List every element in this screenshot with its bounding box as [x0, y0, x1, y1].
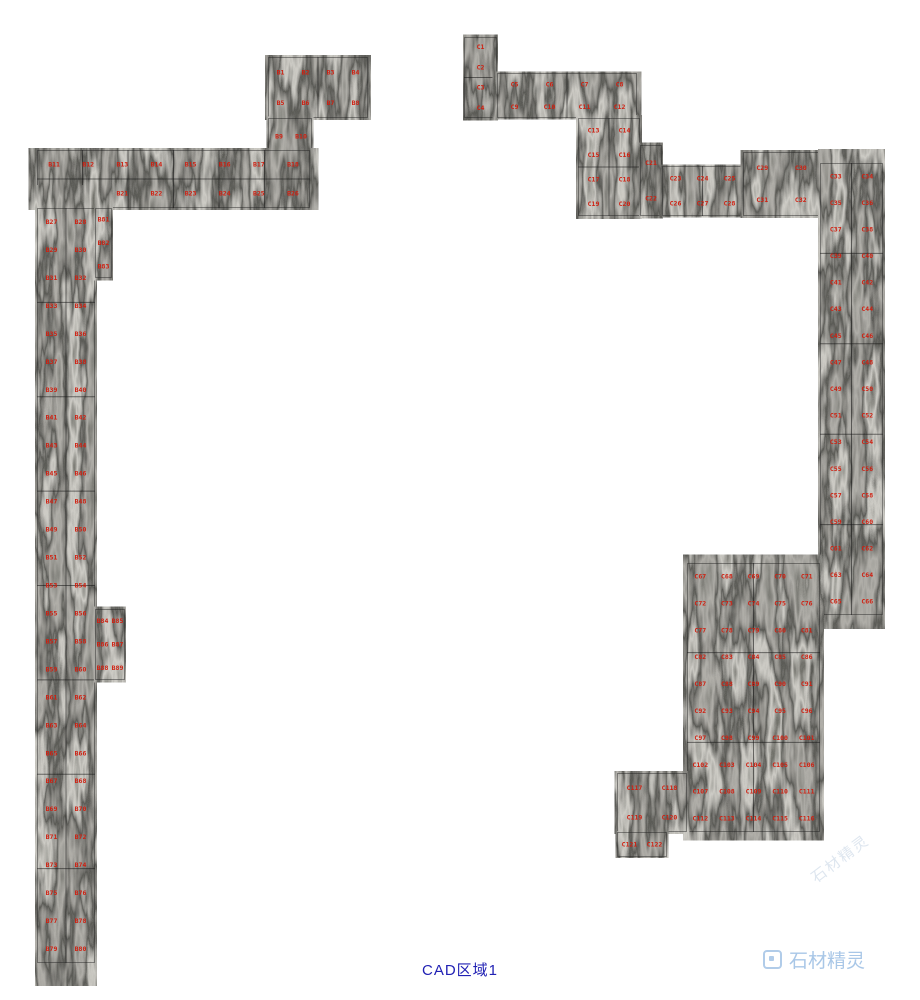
tile-region-left-band: B11B12B13B14B15B16B17B18B19B20B21B22B23B…: [37, 150, 310, 208]
tile-label: B44: [75, 442, 87, 450]
tile-label: B12: [82, 161, 94, 169]
tile-label: C77: [694, 626, 706, 634]
tile-label: B10: [295, 133, 307, 141]
tile-label: B84: [97, 617, 109, 625]
tile-label: B26: [287, 190, 299, 198]
tile-label: C112: [692, 815, 708, 823]
tile-label: B52: [75, 554, 87, 562]
tile-label: C69: [748, 572, 760, 580]
tile-label: C83: [721, 653, 733, 661]
tile-label: B14: [151, 161, 163, 169]
tile-label: C95: [774, 707, 786, 715]
tile-label: C107: [692, 788, 708, 796]
tile-label: C64: [861, 571, 873, 579]
watermark-logo-icon: [763, 950, 782, 969]
tile-label: B37: [46, 358, 58, 366]
tile-label: B80: [75, 945, 87, 953]
tile-label: B67: [46, 777, 58, 785]
tile-label: C42: [861, 279, 873, 287]
tile-label: C67: [694, 572, 706, 580]
tile-label: C66: [861, 598, 873, 606]
tile-label: B56: [75, 609, 87, 617]
tile-label: C120: [662, 813, 678, 821]
tile-label: C39: [830, 252, 842, 260]
tile-label: C119: [627, 813, 643, 821]
tile-label: C50: [861, 385, 873, 393]
tile-label: C94: [748, 707, 760, 715]
tile-label: C68: [721, 572, 733, 580]
tile-label: B62: [75, 693, 87, 701]
tile-label: B87: [112, 641, 124, 649]
tile-label: C1: [477, 43, 485, 51]
tile-label: B68: [75, 777, 87, 785]
tile-label: B69: [46, 805, 58, 813]
tile-label: C9: [511, 103, 519, 111]
tile-label: B17: [253, 161, 265, 169]
tile-label: B74: [75, 861, 87, 869]
tile-label: B54: [75, 582, 87, 590]
tile-label: C115: [772, 815, 788, 823]
tile-label: B82: [98, 239, 110, 247]
tile-label: B73: [46, 861, 58, 869]
tile-label: C41: [830, 279, 842, 287]
tile-region-right-band-mid: C23C24C25C26C27C28: [662, 166, 743, 216]
tile-label: B33: [46, 302, 58, 310]
tile-region-right-top-row: C5C6C7C8C9C10C11C12: [497, 73, 637, 118]
tile-label: C81: [801, 626, 813, 634]
tile-label: C88: [721, 680, 733, 688]
tile-label: B60: [75, 665, 87, 673]
tile-label: B51: [46, 554, 58, 562]
tile-label: B3: [327, 68, 335, 76]
tile-label: B31: [46, 274, 58, 282]
tile-label: C122: [647, 841, 663, 849]
stone-tiles-right-step[interactable]: [640, 145, 662, 216]
tile-label: B76: [75, 889, 87, 897]
tile-label: C70: [774, 572, 786, 580]
tile-label: B49: [46, 526, 58, 534]
tile-label: B20: [82, 190, 94, 198]
tile-label: B55: [46, 609, 58, 617]
tile-label: C44: [861, 305, 873, 313]
tile-label: C76: [801, 599, 813, 607]
tile-label: C14: [619, 126, 631, 134]
tile-label: B25: [253, 190, 265, 198]
tile-label: C84: [748, 653, 760, 661]
tile-label: C65: [830, 598, 842, 606]
tile-label: B6: [302, 99, 310, 107]
tile-label: B29: [46, 246, 58, 254]
tile-label: C92: [694, 707, 706, 715]
tile-label: C22: [645, 194, 657, 202]
tile-label: C91: [801, 680, 813, 688]
tile-label: B41: [46, 414, 58, 422]
tile-label: B4: [352, 68, 360, 76]
tile-label: B78: [75, 917, 87, 925]
tile-label: C118: [662, 784, 678, 792]
tile-region-left-stub: B81B82B83: [95, 208, 112, 278]
tile-region-top-left-block: B1B2B3B4B5B6B7B8: [268, 57, 368, 118]
tile-label: C87: [694, 680, 706, 688]
tile-label: C26: [670, 200, 682, 208]
tile-label: B34: [75, 302, 87, 310]
tile-label: B40: [75, 386, 87, 394]
tile-label: C25: [724, 175, 736, 183]
tile-label: B86: [97, 641, 109, 649]
tile-regions-root: B1B2B3B4B5B6B7B8B9B10B11B12B13B14B15B16B…: [37, 37, 883, 963]
tile-label: C116: [799, 815, 815, 823]
tile-label: B2: [302, 68, 310, 76]
tile-label: B19: [48, 190, 60, 198]
tile-label: C40: [861, 252, 873, 260]
tile-label: C71: [801, 572, 813, 580]
tile-label: C7: [581, 80, 589, 88]
tile-label: B72: [75, 833, 87, 841]
tile-label: C18: [619, 175, 631, 183]
tile-label: C60: [861, 518, 873, 526]
tile-label: C117: [627, 784, 643, 792]
tile-label: C10: [544, 103, 556, 111]
tile-label: C45: [830, 332, 842, 340]
tile-label: C72: [694, 599, 706, 607]
tile-label: C103: [719, 761, 735, 769]
tile-label: B38: [75, 358, 87, 366]
watermark-text: 石材精灵: [789, 946, 865, 973]
cad-canvas[interactable]: B1B2B3B4B5B6B7B8B9B10B11B12B13B14B15B16B…: [0, 0, 920, 1000]
tile-label: B46: [75, 470, 87, 478]
tile-label: C16: [619, 151, 631, 159]
tile-label: C13: [588, 126, 600, 134]
tile-label: B45: [46, 470, 58, 478]
tile-label: C51: [830, 412, 842, 420]
tile-label: B58: [75, 637, 87, 645]
watermark: 石材精灵: [763, 946, 865, 973]
tile-label: C27: [697, 200, 709, 208]
tile-label: B47: [46, 498, 58, 506]
tile-label: B75: [46, 889, 58, 897]
tile-label: C33: [830, 172, 842, 180]
tile-label: C78: [721, 626, 733, 634]
tile-label: B50: [75, 526, 87, 534]
tile-label: C102: [692, 761, 708, 769]
tile-label: B53: [46, 582, 58, 590]
tile-label: C34: [861, 172, 873, 180]
stone-layout: B1B2B3B4B5B6B7B8B9B10B11B12B13B14B15B16B…: [0, 0, 920, 1000]
tile-label: C35: [830, 199, 842, 207]
tile-label: C74: [748, 599, 760, 607]
tile-region-left-bump: B84B85B86B87B88B89: [95, 609, 125, 680]
tile-label: C63: [830, 571, 842, 579]
tile-region-bottom-right-stub: C121C122: [617, 832, 667, 857]
tile-label: C12: [614, 103, 626, 111]
tile-label: C75: [774, 599, 786, 607]
tile-label: B15: [185, 161, 197, 169]
tile-label: C20: [619, 200, 631, 208]
tile-label: C110: [772, 788, 788, 796]
tile-label: B16: [219, 161, 231, 169]
tile-label: B7: [327, 99, 335, 107]
tile-label: C46: [861, 332, 873, 340]
tile-label: C113: [719, 815, 735, 823]
tile-label: B63: [46, 721, 58, 729]
tile-label: C54: [861, 438, 873, 446]
tile-label: B42: [75, 414, 87, 422]
tile-label: C96: [801, 707, 813, 715]
tile-label: B81: [98, 216, 110, 224]
tile-label: B22: [151, 190, 163, 198]
tile-label: B23: [185, 190, 197, 198]
tile-label: B66: [75, 749, 87, 757]
tile-label: C36: [861, 199, 873, 207]
tile-label: C15: [588, 151, 600, 159]
tile-label: B9: [275, 133, 283, 141]
tile-label: B85: [112, 617, 124, 625]
tile-label: B13: [116, 161, 128, 169]
tile-label: C24: [697, 175, 709, 183]
tile-label: C86: [801, 653, 813, 661]
tile-label: C8: [616, 80, 624, 88]
stone-tiles-bottom-right-ext[interactable]: [617, 773, 687, 832]
tile-label: C31: [756, 196, 768, 204]
tile-label: C53: [830, 438, 842, 446]
tile-label: B30: [75, 246, 87, 254]
tile-region-right-col: C13C14C15C16C17C18C19C20: [578, 118, 640, 216]
tile-label: C114: [746, 815, 762, 823]
tile-region-right-top-tile: C1C2C3C4: [464, 37, 497, 118]
tile-label: C17: [588, 175, 600, 183]
tile-label: C32: [795, 196, 807, 204]
stone-tiles-right-band[interactable]: [743, 152, 820, 216]
tile-label: C80: [774, 626, 786, 634]
tile-label: B65: [46, 749, 58, 757]
tile-label: B61: [46, 693, 58, 701]
tile-label: C59: [830, 518, 842, 526]
tile-label: C56: [861, 465, 873, 473]
tile-label: B8: [352, 99, 360, 107]
tile-region-right-band: C29C30C31C32: [743, 152, 820, 216]
tile-label: C19: [588, 200, 600, 208]
tile-label: B48: [75, 498, 87, 506]
tile-label: C104: [746, 761, 762, 769]
tile-label: C93: [721, 707, 733, 715]
tile-label: C62: [861, 545, 873, 553]
tile-label: B27: [46, 218, 58, 226]
tile-label: C121: [622, 841, 638, 849]
tile-region-right-strip: C33C34C35C36C37C38C39C40C41C42C43C44C45C…: [820, 163, 883, 615]
tile-label: C61: [830, 545, 842, 553]
tile-label: C49: [830, 385, 842, 393]
tile-label: B71: [46, 833, 58, 841]
tile-label: B11: [48, 161, 60, 169]
tile-label: C58: [861, 491, 873, 499]
tile-label: C99: [748, 734, 760, 742]
tile-label: B79: [46, 945, 58, 953]
tile-label: C79: [748, 626, 760, 634]
tile-label: C101: [799, 734, 815, 742]
tile-label: B57: [46, 637, 58, 645]
tile-label: C97: [694, 734, 706, 742]
tile-label: C37: [830, 225, 842, 233]
tile-label: B43: [46, 442, 58, 450]
tile-label: C30: [795, 164, 807, 172]
tile-label: C90: [774, 680, 786, 688]
tile-label: B32: [75, 274, 87, 282]
tile-label: C73: [721, 599, 733, 607]
tile-label: C98: [721, 734, 733, 742]
tile-label: C111: [799, 788, 815, 796]
tile-label: B64: [75, 721, 87, 729]
tile-label: C38: [861, 225, 873, 233]
tile-label: B88: [97, 664, 109, 672]
tile-label: B18: [287, 161, 299, 169]
tile-label: C100: [772, 734, 788, 742]
tile-label: C43: [830, 305, 842, 313]
tile-label: C4: [477, 104, 485, 112]
tile-label: C28: [724, 200, 736, 208]
tile-label: B59: [46, 665, 58, 673]
tile-region-right-step: C21C22: [640, 145, 662, 216]
tile-label: B5: [277, 99, 285, 107]
tile-label: C47: [830, 358, 842, 366]
tile-label: C11: [579, 103, 591, 111]
tile-label: C5: [511, 80, 519, 88]
tile-label: B77: [46, 917, 58, 925]
tile-label: B1: [277, 68, 285, 76]
tile-label: C6: [546, 80, 554, 88]
tile-region-bottom-right-ext: C117C118C119C120: [617, 773, 687, 832]
tile-label: B83: [98, 262, 110, 270]
tile-label: C52: [861, 412, 873, 420]
tile-label: C108: [719, 788, 735, 796]
tile-region-left-strip: B27B28B29B30B31B32B33B34B35B36B37B38B39B…: [37, 208, 95, 963]
tile-region-bottom-right-block: C67C68C69C70C71C72C73C74C75C76C77C78C79C…: [687, 563, 820, 832]
tile-label: C85: [774, 653, 786, 661]
tile-label: C2: [477, 63, 485, 71]
tile-label: C55: [830, 465, 842, 473]
tile-label: C57: [830, 491, 842, 499]
tile-label: C48: [861, 358, 873, 366]
tile-label: C106: [799, 761, 815, 769]
tile-label: C21: [645, 159, 657, 167]
tile-label: B28: [75, 218, 87, 226]
tile-label: B70: [75, 805, 87, 813]
tile-label: C29: [756, 164, 768, 172]
tile-label: B39: [46, 386, 58, 394]
tile-label: C23: [670, 175, 682, 183]
tile-label: B36: [75, 330, 87, 338]
tile-label: B89: [112, 664, 124, 672]
tile-label: C105: [772, 761, 788, 769]
tile-label: B21: [116, 190, 128, 198]
tile-label: C109: [746, 788, 762, 796]
tile-region-top-left-small: B9B10: [268, 118, 312, 155]
tile-label: C3: [477, 84, 485, 92]
tile-label: C82: [694, 653, 706, 661]
tile-label: B24: [219, 190, 231, 198]
tile-label: B35: [46, 330, 58, 338]
tile-label: C89: [748, 680, 760, 688]
